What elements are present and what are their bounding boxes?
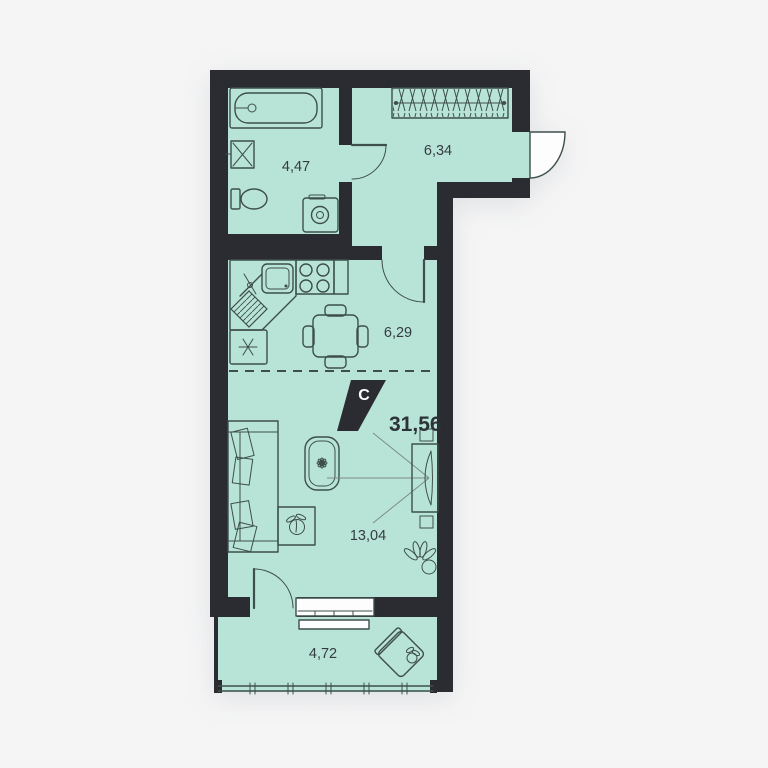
room-area-label-bathroom: 4,47 — [282, 159, 310, 175]
door-swing — [530, 132, 565, 178]
wall-segment — [214, 617, 218, 687]
room-area-label-living-room: 13,04 — [350, 528, 386, 544]
entrance-door — [530, 132, 565, 178]
wall-segment — [339, 88, 352, 145]
room-area-label-hallway: 6,34 — [424, 143, 452, 159]
window — [296, 598, 374, 629]
floor-plan: C — [0, 0, 768, 768]
room-area-label-balcony: 4,72 — [309, 646, 337, 662]
wall-segment — [512, 70, 530, 132]
wall-segment — [210, 70, 530, 88]
wall-segment — [210, 597, 250, 617]
wardrobe-icon — [392, 88, 508, 118]
wall-segment — [339, 246, 382, 260]
total-area-label: 31,56 — [389, 413, 442, 436]
north-letter: C — [358, 387, 370, 404]
floor-plan-page: C — [0, 0, 768, 768]
wall-segment — [210, 234, 352, 260]
wall-segment — [210, 70, 228, 617]
wall-segment — [424, 246, 437, 260]
window-sill — [299, 620, 369, 629]
wall-segment — [437, 182, 453, 692]
room-area-label-kitchen: 6,29 — [384, 325, 412, 341]
